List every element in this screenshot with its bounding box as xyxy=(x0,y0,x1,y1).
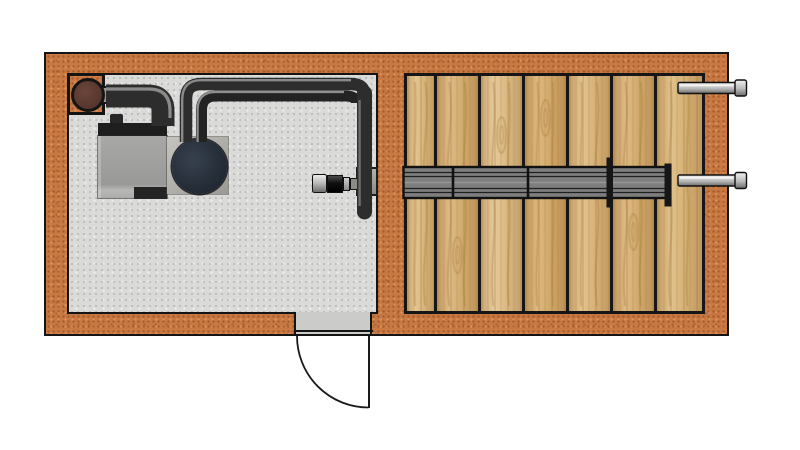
door-threshold xyxy=(294,312,372,336)
blower-fan-housing xyxy=(172,139,227,194)
heater-corner-notch xyxy=(134,187,167,199)
valve-actuator-body xyxy=(327,175,343,194)
deck-plank-1 xyxy=(407,76,434,311)
deck-plank-6 xyxy=(610,76,654,311)
deck-plank-4 xyxy=(522,76,566,311)
door-frame-line xyxy=(294,334,373,336)
door-leaf xyxy=(368,336,370,408)
wood-deck xyxy=(404,73,705,314)
deck-plank-5 xyxy=(566,76,610,311)
deck-plank-3 xyxy=(478,76,522,311)
door-swing-arc xyxy=(297,336,369,408)
chimney-flue-circle xyxy=(71,78,105,112)
valve-actuator-cap xyxy=(312,174,327,193)
deck-plank-2 xyxy=(434,76,478,311)
door-swing xyxy=(297,336,369,408)
valve-connector xyxy=(350,178,358,190)
deck-plank-7 xyxy=(654,76,702,311)
valve-collar xyxy=(343,177,350,192)
valve-wall-flange xyxy=(356,167,378,196)
heater-top-band xyxy=(98,123,167,136)
floor-plan-canvas xyxy=(0,0,800,450)
door-frame-line xyxy=(294,330,373,332)
